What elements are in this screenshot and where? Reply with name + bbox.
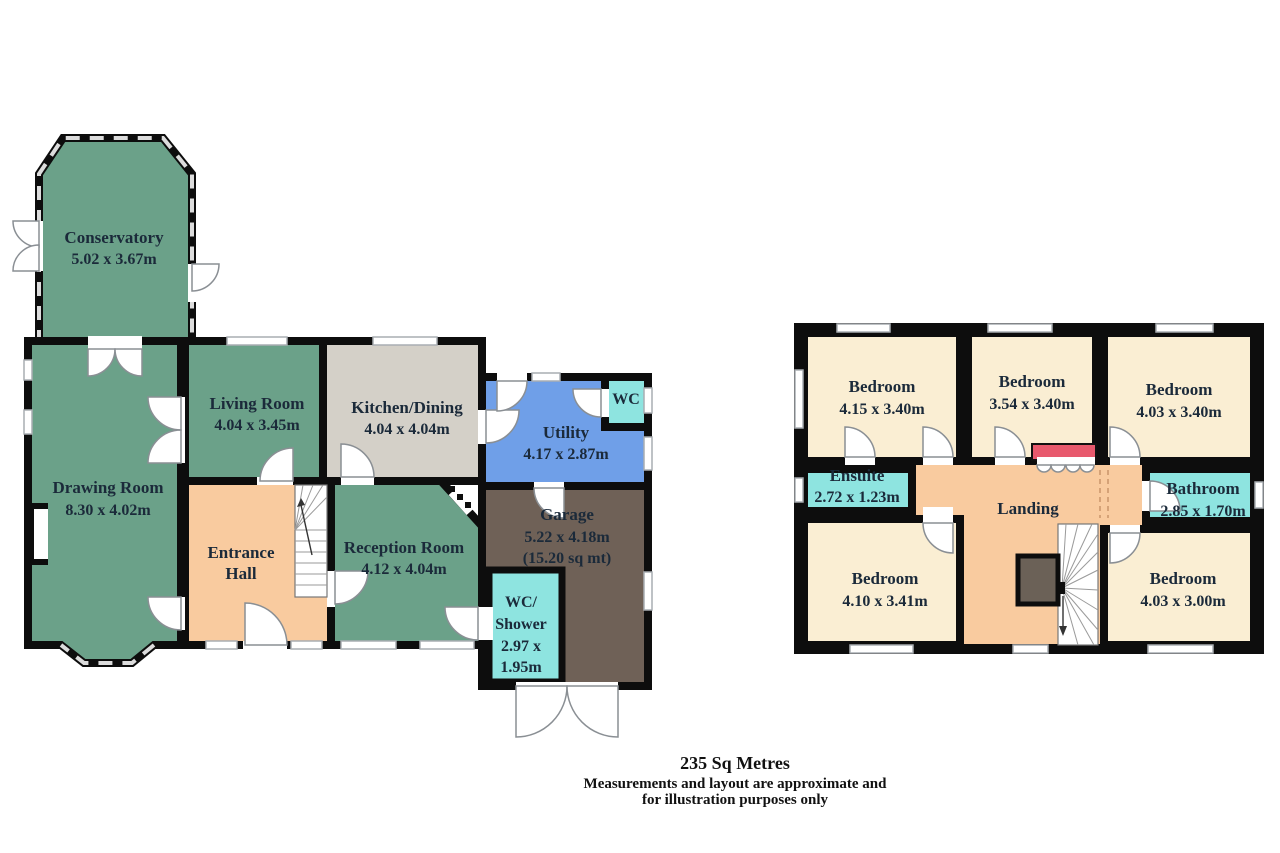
window (644, 437, 652, 470)
label-living-room: Living Room (210, 394, 305, 413)
window (644, 388, 652, 413)
window (1148, 645, 1213, 653)
label-bedroom-bottom-left-dims: 4.10 x 3.41m (842, 593, 928, 610)
label-wc-shower-3: 2.97 x (501, 638, 541, 655)
label-living-room-dims: 4.04 x 3.45m (214, 417, 300, 434)
label-kitchen-dining: Kitchen/Dining (351, 398, 463, 417)
label-bathroom-dims: 2.85 x 1.70m (1160, 503, 1246, 520)
window (341, 641, 396, 649)
label-bathroom: Bathroom (1166, 479, 1239, 498)
fireplace-recess (34, 509, 48, 559)
label-bedroom-top-middle: Bedroom (999, 372, 1066, 391)
label-bedroom-top-left: Bedroom (849, 377, 916, 396)
label-wc-shower-1: WC/ (505, 594, 538, 611)
label-garage-dims: 5.22 x 4.18m (524, 529, 610, 546)
label-bedroom-top-middle-dims: 3.54 x 3.40m (989, 396, 1075, 413)
door-opening (1142, 481, 1150, 511)
disclaimer-line-2: for illustration purposes only (642, 792, 828, 808)
window (850, 645, 913, 653)
window (24, 360, 32, 380)
window (373, 337, 437, 345)
window (837, 324, 890, 332)
door-opening (1110, 525, 1140, 533)
window (24, 410, 32, 434)
window (1013, 645, 1048, 653)
label-drawing-room: Drawing Room (53, 478, 164, 497)
label-garage: Garage (540, 505, 594, 524)
staircase-ground (295, 485, 327, 597)
window (227, 337, 287, 345)
floorplan-page: Conservatory 5.02 x 3.67m Drawing Room 8… (0, 0, 1280, 853)
door-opening (327, 571, 335, 607)
window (795, 370, 803, 428)
door-opening (1110, 457, 1140, 465)
label-bedroom-bottom-left: Bedroom (852, 569, 919, 588)
landing-cupboard (1018, 556, 1058, 604)
label-ensuite: Ensuite (830, 466, 885, 485)
label-reception-room-dims: 4.12 x 4.04m (361, 561, 447, 578)
window (1255, 482, 1263, 508)
label-wc-shower-2: Shower (495, 616, 547, 633)
floorplan-canvas: Conservatory 5.02 x 3.67m Drawing Room 8… (0, 0, 1280, 853)
label-entrance-hall-1: Entrance (207, 543, 275, 562)
window (532, 373, 560, 381)
label-bedroom-bottom-right-dims: 4.03 x 3.00m (1140, 593, 1226, 610)
label-wc: WC (612, 391, 640, 408)
window (988, 324, 1052, 332)
window (291, 641, 322, 649)
door-opening (845, 457, 875, 465)
door-opening (923, 507, 953, 523)
label-reception-room: Reception Room (344, 538, 464, 557)
label-bedroom-top-right: Bedroom (1146, 380, 1213, 399)
garage-door-arc (567, 686, 618, 737)
label-conservatory: Conservatory (64, 228, 164, 247)
label-utility-dims: 4.17 x 2.87m (523, 446, 609, 463)
door-opening (478, 410, 486, 444)
door-opening (497, 373, 527, 381)
built-in-wardrobe (1032, 444, 1096, 472)
door-arc (13, 221, 39, 247)
label-landing: Landing (997, 499, 1059, 518)
label-entrance-hall-2: Hall (225, 564, 256, 583)
door-opening (341, 477, 374, 485)
label-garage-area: (15.20 sq mt) (523, 550, 611, 567)
door-opening (478, 607, 493, 640)
disclaimer-line-1: Measurements and layout are approximate … (584, 776, 888, 792)
label-ensuite-dims: 2.72 x 1.23m (814, 489, 900, 506)
label-kitchen-dining-dims: 4.04 x 4.04m (364, 421, 450, 438)
window (420, 641, 474, 649)
door-opening (995, 457, 1025, 465)
label-bedroom-top-right-dims: 4.03 x 3.40m (1136, 404, 1222, 421)
door-arc (192, 264, 219, 291)
window (795, 478, 803, 502)
total-area-text: 235 Sq Metres (680, 753, 790, 773)
door-opening (601, 389, 609, 417)
label-wc-shower-4: 1.95m (500, 659, 542, 676)
door-arc (13, 245, 39, 271)
staircase-first (1058, 524, 1098, 645)
garage-door-arc (516, 686, 567, 737)
door-opening (923, 457, 953, 465)
label-utility: Utility (543, 423, 590, 442)
label-bedroom-top-left-dims: 4.15 x 3.40m (839, 401, 925, 418)
window (1156, 324, 1213, 332)
label-drawing-room-dims: 8.30 x 4.02m (65, 502, 151, 519)
door-opening (88, 336, 142, 349)
window (206, 641, 237, 649)
label-bedroom-bottom-right: Bedroom (1150, 569, 1217, 588)
window (644, 572, 652, 610)
label-conservatory-dims: 5.02 x 3.67m (71, 251, 157, 268)
